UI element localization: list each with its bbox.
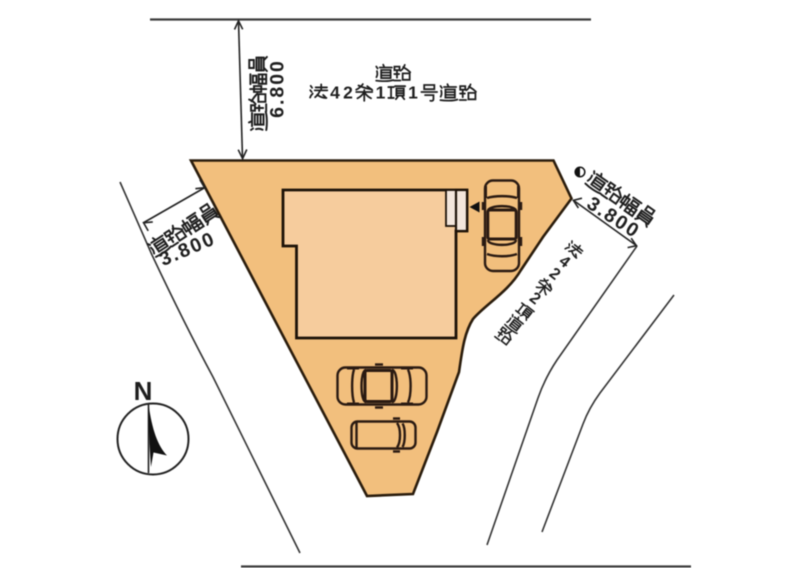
svg-text:4: 4 xyxy=(330,83,340,103)
svg-text:2: 2 xyxy=(526,289,544,308)
svg-text:2: 2 xyxy=(546,265,564,284)
svg-text:1: 1 xyxy=(376,83,386,103)
svg-text:1: 1 xyxy=(408,83,418,103)
svg-text:6.800: 6.800 xyxy=(267,59,289,118)
svg-text:N: N xyxy=(134,376,153,406)
svg-text:3.800: 3.800 xyxy=(583,193,644,243)
svg-text:2: 2 xyxy=(343,83,353,103)
